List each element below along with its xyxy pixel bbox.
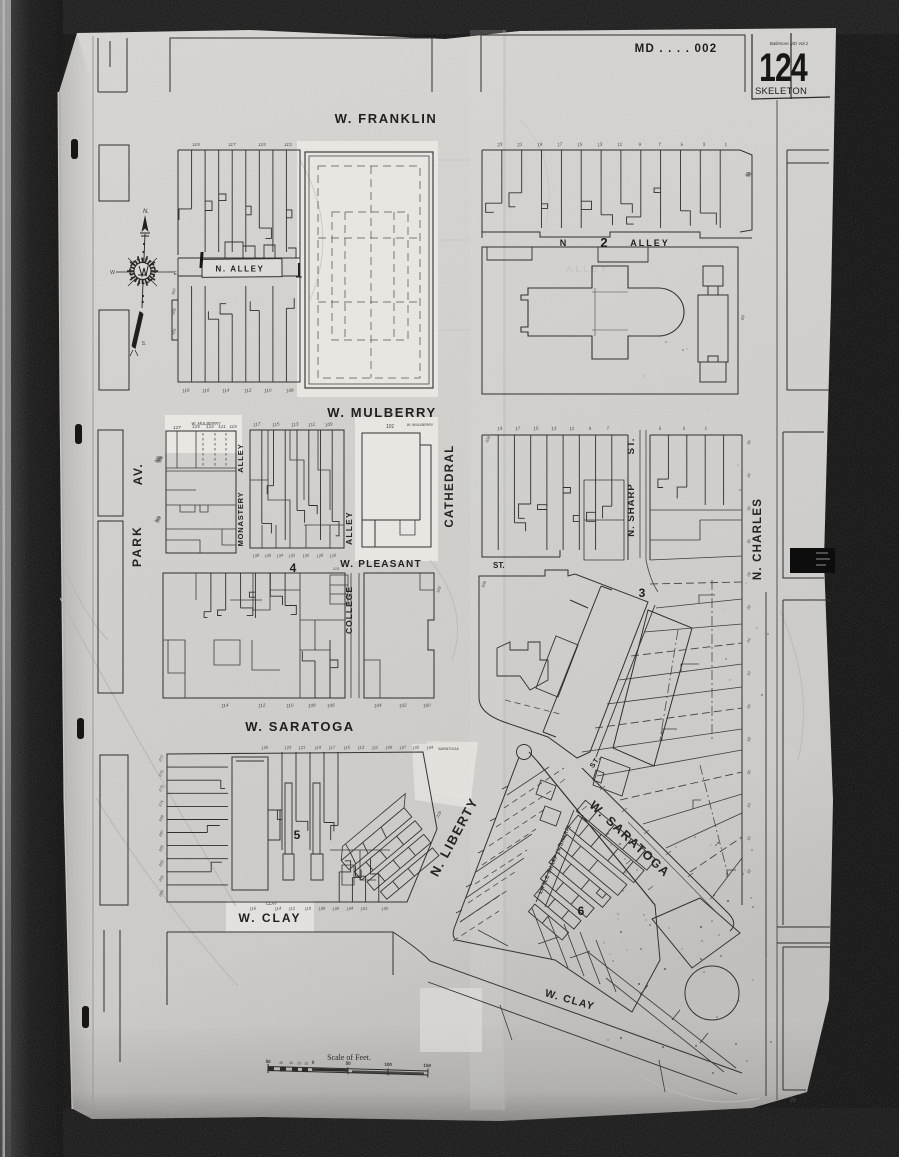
svg-text:110: 110	[286, 702, 294, 708]
svg-text:29: 29	[789, 1098, 796, 1104]
svg-text:50: 50	[266, 1059, 272, 1064]
svg-text:127: 127	[173, 425, 181, 430]
svg-text:109: 109	[385, 744, 393, 750]
svg-text:CATHEDRAL: CATHEDRAL	[444, 444, 456, 527]
svg-text:123: 123	[284, 744, 292, 750]
svg-text:AV.: AV.	[131, 463, 145, 486]
svg-text:N.: N.	[143, 209, 149, 215]
svg-text:104: 104	[346, 905, 354, 911]
svg-text:W. SARATOGA: W. SARATOGA	[245, 719, 355, 734]
svg-text:101: 101	[360, 906, 368, 912]
svg-text:112: 112	[258, 702, 266, 708]
svg-text:SKELETON: SKELETON	[755, 86, 807, 97]
svg-text:113: 113	[284, 142, 292, 147]
svg-text:ST.: ST.	[626, 438, 637, 455]
svg-text:125: 125	[192, 424, 200, 429]
svg-text:6: 6	[578, 904, 585, 918]
svg-text:111: 111	[371, 745, 378, 751]
svg-text:50: 50	[346, 1061, 352, 1066]
svg-text:118: 118	[182, 387, 190, 393]
svg-text:116: 116	[202, 387, 210, 393]
svg-text:40: 40	[279, 1061, 283, 1065]
svg-text:115: 115	[333, 566, 340, 571]
svg-text:104: 104	[426, 744, 434, 750]
svg-text:115: 115	[258, 142, 266, 147]
svg-text:N. ALLEY: N. ALLEY	[216, 265, 265, 274]
svg-text:30: 30	[289, 1061, 293, 1065]
svg-text:119: 119	[229, 424, 237, 429]
svg-text:121: 121	[298, 745, 306, 751]
svg-text:124: 124	[759, 46, 808, 90]
svg-text:SARATOGA: SARATOGA	[438, 747, 459, 751]
svg-text:10: 10	[304, 1062, 308, 1066]
svg-text:110: 110	[264, 387, 272, 393]
svg-text:108: 108	[318, 905, 326, 911]
svg-text:114: 114	[221, 702, 229, 708]
svg-text:119: 119	[192, 142, 200, 147]
svg-text:W. CLAY: W. CLAY	[239, 911, 302, 925]
svg-text:20: 20	[297, 1061, 301, 1065]
svg-text:121: 121	[218, 424, 226, 429]
svg-text:W. MULBERRY: W. MULBERRY	[327, 405, 437, 420]
svg-text:100: 100	[384, 1062, 392, 1067]
svg-text:107: 107	[399, 744, 407, 750]
svg-text:N. CHARLES: N. CHARLES	[752, 498, 764, 580]
svg-text:ALLEY: ALLEY	[236, 443, 245, 473]
svg-text:2: 2	[600, 235, 607, 250]
svg-text:105: 105	[412, 744, 420, 750]
svg-text:MONASTERY: MONASTERY	[236, 492, 245, 547]
svg-text:117: 117	[228, 142, 236, 147]
svg-text:PARK: PARK	[130, 525, 144, 567]
svg-text:150: 150	[423, 1063, 431, 1068]
svg-text:114: 114	[222, 387, 230, 393]
svg-text:ALLEY: ALLEY	[344, 511, 354, 545]
svg-text:N. SHARP: N. SHARP	[626, 483, 637, 536]
svg-text:W. MULBERRY: W. MULBERRY	[407, 423, 434, 427]
svg-text:5: 5	[294, 828, 301, 842]
svg-text:CLAY: CLAY	[266, 901, 278, 906]
svg-text:W.: W.	[110, 270, 116, 276]
svg-text:3: 3	[639, 586, 646, 600]
svg-text:100: 100	[381, 905, 389, 911]
svg-text:W. FRANKLIN: W. FRANKLIN	[335, 111, 438, 126]
svg-text:126: 126	[261, 744, 269, 750]
svg-text:COLLEGE: COLLEGE	[344, 586, 354, 634]
svg-text:106: 106	[332, 905, 340, 911]
svg-text:101: 101	[386, 424, 395, 430]
svg-text:ST.: ST.	[493, 561, 505, 570]
svg-text:112: 112	[244, 387, 252, 393]
svg-text:123: 123	[206, 424, 214, 429]
svg-text:W. PLEASANT: W. PLEASANT	[340, 559, 422, 570]
svg-text:S.: S.	[142, 341, 147, 347]
svg-text:MD . . . . 002: MD . . . . 002	[635, 43, 718, 55]
